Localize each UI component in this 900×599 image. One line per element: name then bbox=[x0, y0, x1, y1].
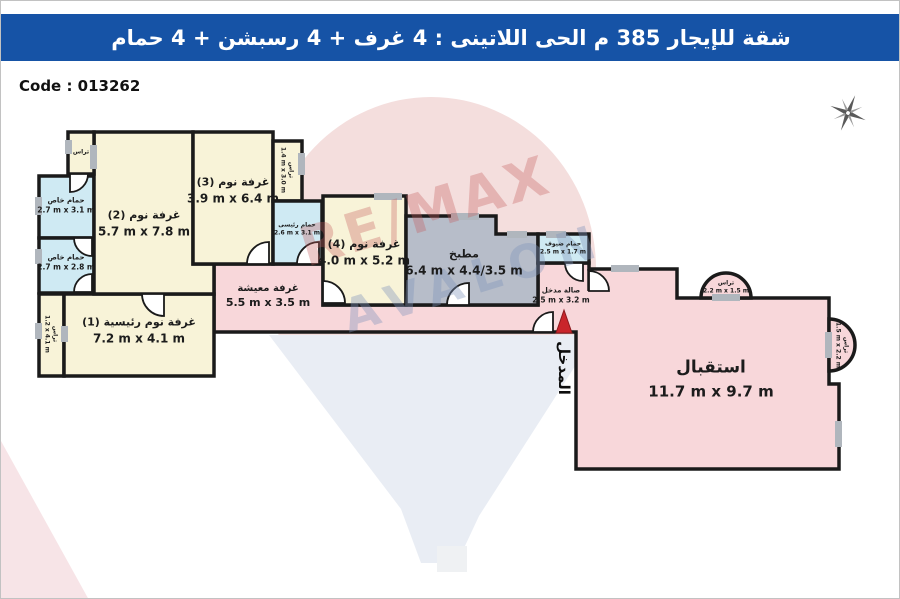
room-shape-terrace-right bbox=[829, 319, 855, 371]
header-bar: شقة للإيجار 385 م الحى اللاتينى : 4 غرف … bbox=[1, 14, 900, 61]
room-shape-bedroom-master bbox=[64, 294, 214, 376]
room-shape-terrace-bed3 bbox=[273, 141, 302, 201]
page-title: شقة للإيجار 385 م الحى اللاتينى : 4 غرف … bbox=[111, 26, 791, 50]
room-shape-bath-private-1 bbox=[39, 176, 94, 238]
room-shape-terrace-bed1 bbox=[39, 294, 64, 376]
listing-code: Code : 013262 bbox=[19, 77, 140, 95]
compass-icon bbox=[823, 88, 872, 137]
floor-plan-page: شقة للإيجار 385 م الحى اللاتينى : 4 غرف … bbox=[0, 0, 900, 599]
